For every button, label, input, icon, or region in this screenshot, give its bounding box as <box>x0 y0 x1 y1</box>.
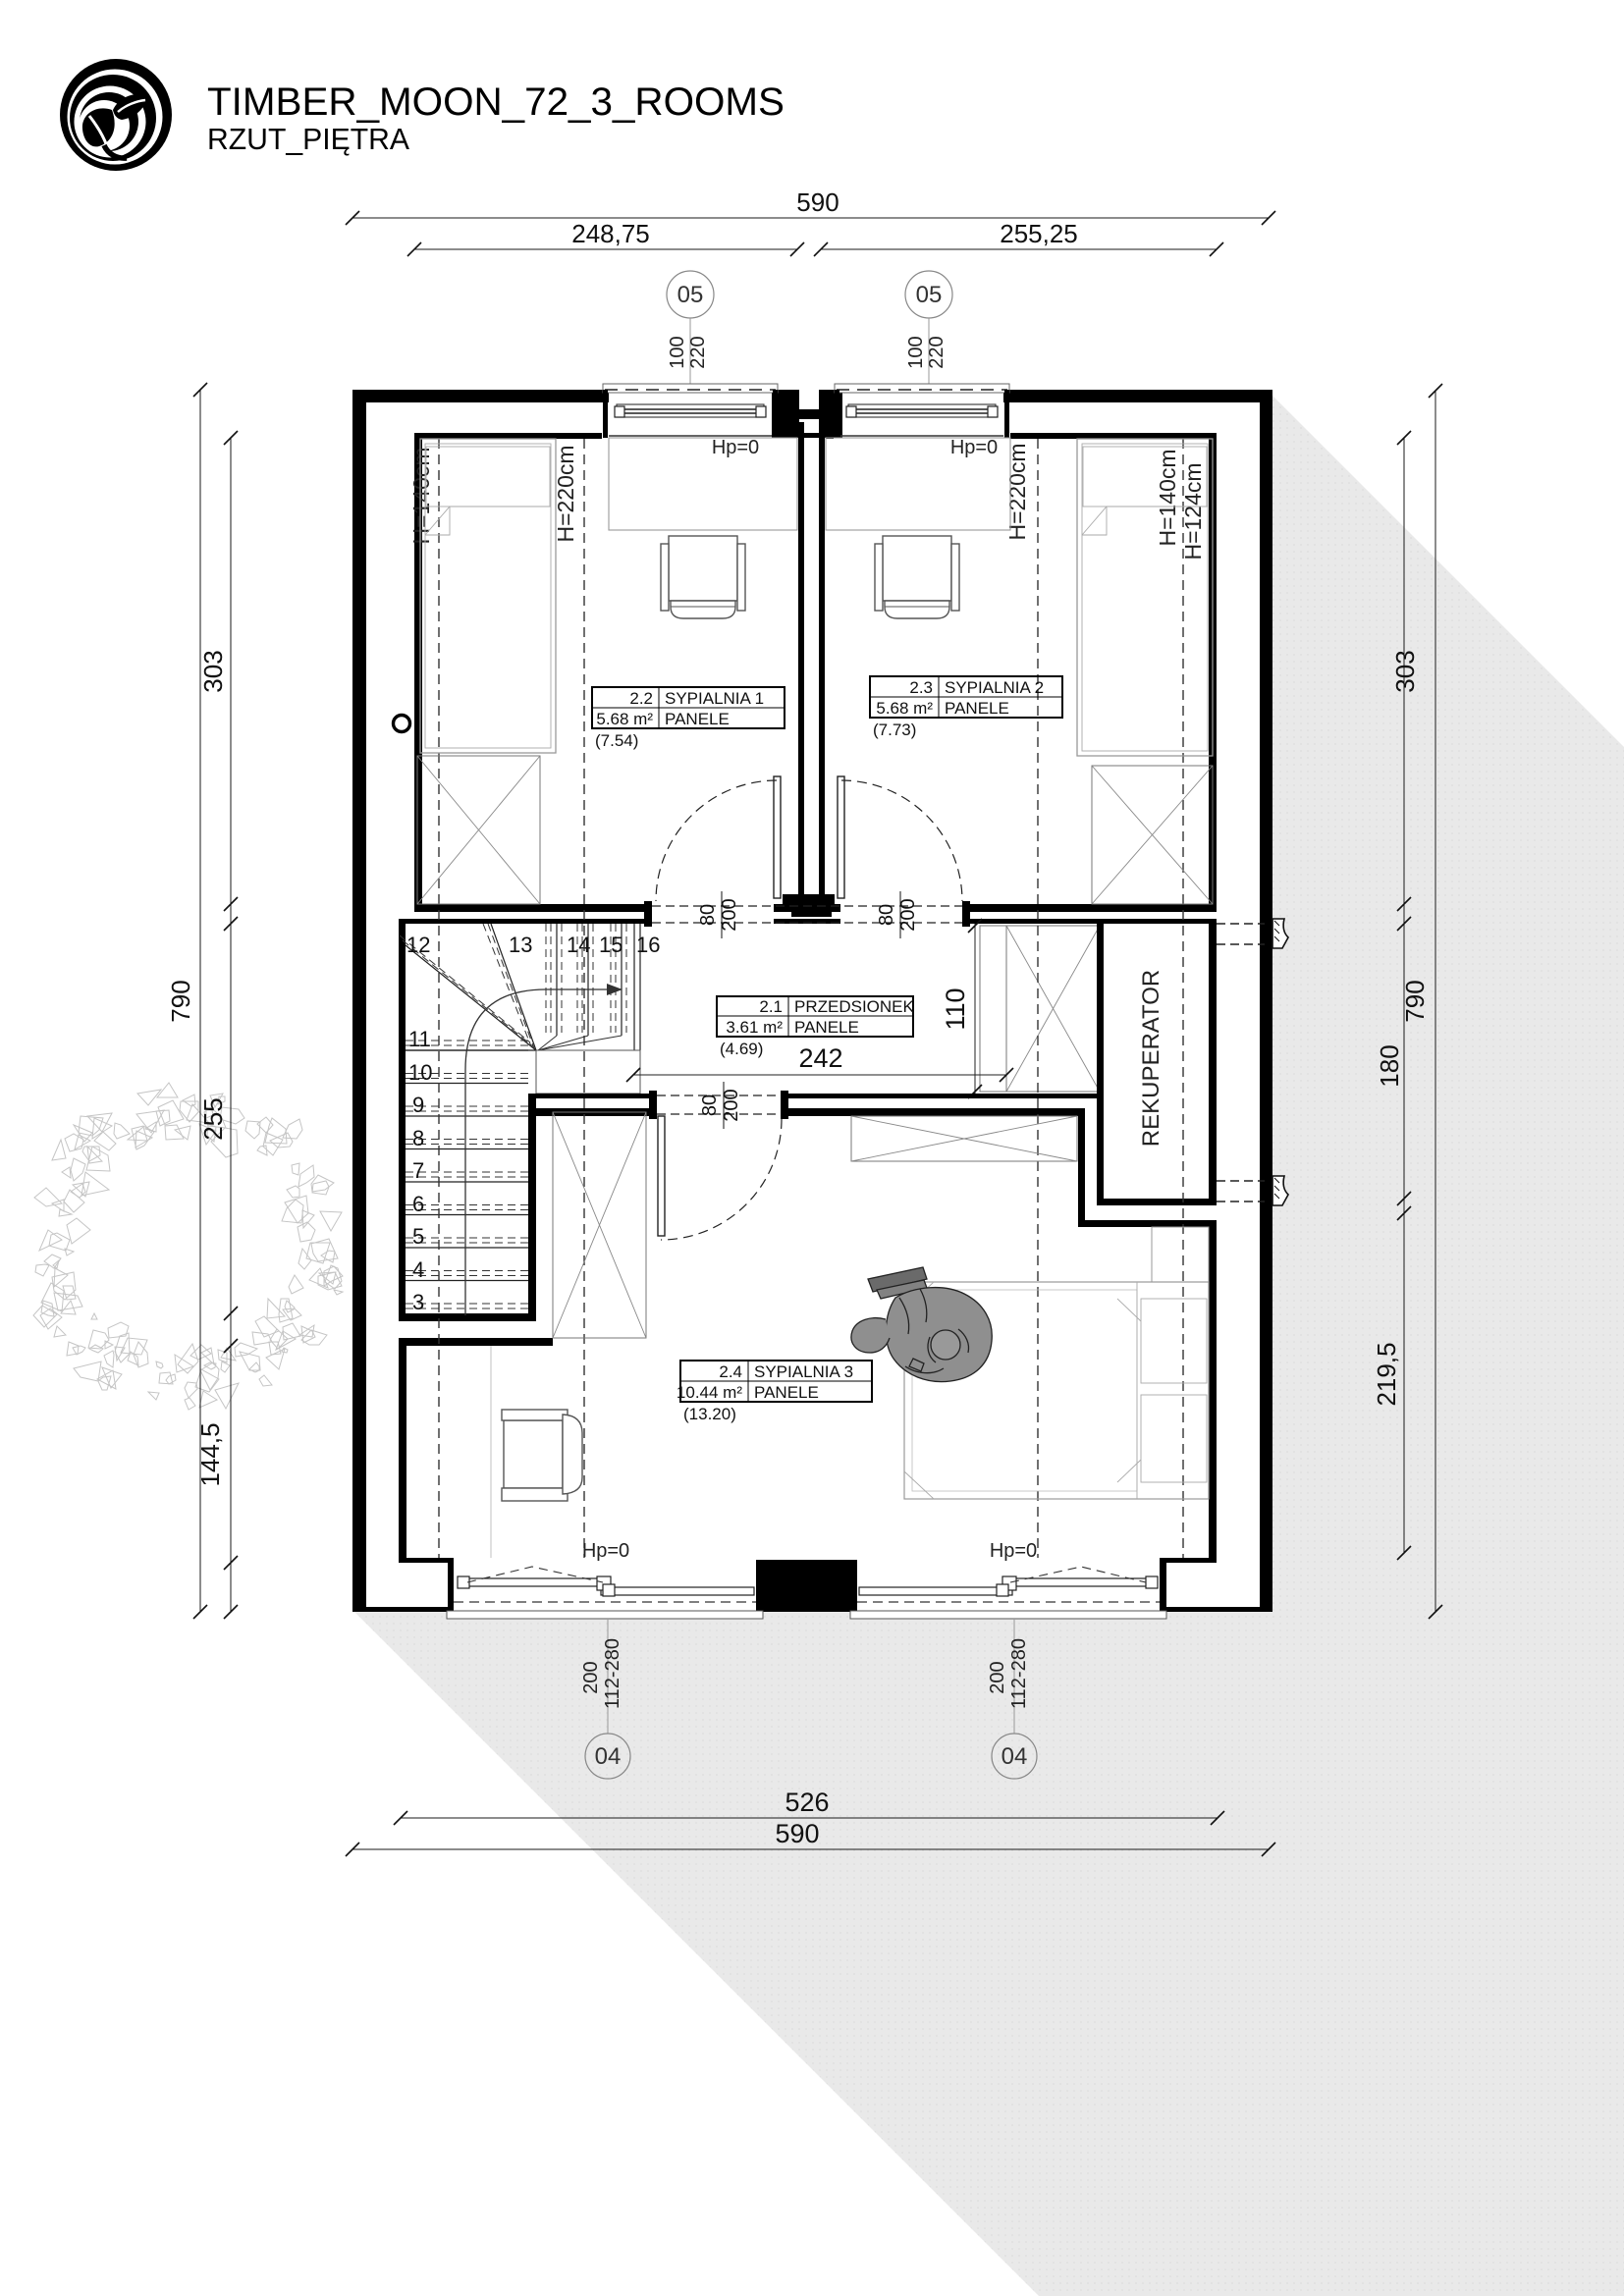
svg-text:80: 80 <box>699 1095 721 1116</box>
svg-text:13: 13 <box>509 933 532 957</box>
svg-text:220: 220 <box>687 336 709 368</box>
svg-text:200: 200 <box>580 1661 602 1693</box>
svg-text:219,5: 219,5 <box>1372 1342 1401 1406</box>
svg-text:526: 526 <box>785 1788 829 1817</box>
svg-text:SYPIALNIA 2: SYPIALNIA 2 <box>945 678 1044 697</box>
svg-text:H=220cm: H=220cm <box>553 445 578 542</box>
svg-text:PANELE: PANELE <box>754 1383 819 1402</box>
svg-text:3.61 m²: 3.61 m² <box>726 1018 783 1037</box>
svg-text:303: 303 <box>198 650 228 692</box>
svg-text:3: 3 <box>412 1290 424 1314</box>
svg-text:(13.20): (13.20) <box>683 1405 736 1423</box>
svg-text:303: 303 <box>1390 650 1420 692</box>
svg-text:144,5: 144,5 <box>195 1422 225 1486</box>
svg-text:(7.73): (7.73) <box>873 721 916 739</box>
svg-text:110: 110 <box>941 988 970 1030</box>
svg-text:PANELE: PANELE <box>665 710 730 728</box>
svg-text:05: 05 <box>677 282 704 308</box>
svg-text:255,25: 255,25 <box>1000 219 1078 248</box>
svg-text:04: 04 <box>1001 1743 1028 1770</box>
svg-text:11: 11 <box>408 1027 431 1051</box>
svg-text:200: 200 <box>719 898 740 931</box>
svg-text:100: 100 <box>905 336 927 368</box>
svg-text:2.4: 2.4 <box>719 1362 742 1381</box>
svg-text:242: 242 <box>798 1043 842 1073</box>
svg-text:5.68 m²: 5.68 m² <box>596 710 653 728</box>
svg-text:790: 790 <box>166 980 195 1022</box>
svg-text:Hp=0: Hp=0 <box>712 437 759 458</box>
svg-text:PANELE: PANELE <box>945 699 1009 718</box>
svg-text:H=220cm: H=220cm <box>1004 443 1030 540</box>
svg-text:8: 8 <box>412 1126 424 1150</box>
svg-text:590: 590 <box>796 187 839 217</box>
svg-text:PANELE: PANELE <box>794 1018 859 1037</box>
svg-text:PRZEDSIONEK: PRZEDSIONEK <box>794 997 915 1016</box>
svg-text:Hp=0: Hp=0 <box>990 1540 1037 1562</box>
svg-text:Hp=0: Hp=0 <box>582 1540 629 1562</box>
svg-text:H=124cm: H=124cm <box>1180 462 1206 560</box>
svg-text:80: 80 <box>697 904 719 926</box>
svg-text:05: 05 <box>916 282 943 308</box>
svg-text:80: 80 <box>876 904 897 926</box>
svg-text:10.44 m²: 10.44 m² <box>677 1383 742 1402</box>
svg-text:180: 180 <box>1375 1044 1404 1087</box>
svg-text:RZUT_PIĘTRA: RZUT_PIĘTRA <box>207 122 409 156</box>
svg-text:5: 5 <box>412 1224 424 1249</box>
svg-text:TIMBER_MOON_72_3_ROOMS: TIMBER_MOON_72_3_ROOMS <box>207 80 785 124</box>
svg-text:(7.54): (7.54) <box>595 731 638 750</box>
svg-text:REKUPERATOR: REKUPERATOR <box>1138 970 1164 1147</box>
svg-text:2.3: 2.3 <box>909 678 933 697</box>
svg-text:(4.69): (4.69) <box>720 1040 763 1058</box>
svg-text:220: 220 <box>926 336 947 368</box>
svg-text:248,75: 248,75 <box>571 219 650 248</box>
svg-text:9: 9 <box>412 1093 424 1117</box>
svg-text:590: 590 <box>775 1819 819 1848</box>
svg-text:H=140cm: H=140cm <box>1155 449 1180 546</box>
svg-text:5.68 m²: 5.68 m² <box>876 699 933 718</box>
svg-text:4: 4 <box>412 1257 424 1282</box>
svg-text:112-280: 112-280 <box>602 1638 623 1709</box>
svg-text:200: 200 <box>897 898 919 931</box>
svg-text:12: 12 <box>406 933 430 957</box>
svg-text:200: 200 <box>721 1089 742 1121</box>
svg-text:16: 16 <box>636 933 660 957</box>
svg-text:7: 7 <box>412 1158 424 1183</box>
svg-text:SYPIALNIA 1: SYPIALNIA 1 <box>665 689 764 708</box>
svg-text:255: 255 <box>198 1097 228 1140</box>
svg-text:10: 10 <box>408 1060 432 1085</box>
svg-text:112-280: 112-280 <box>1008 1638 1030 1709</box>
svg-text:100: 100 <box>667 336 688 368</box>
svg-text:Hp=0: Hp=0 <box>950 437 998 458</box>
svg-text:6: 6 <box>412 1192 424 1216</box>
svg-text:15: 15 <box>599 933 623 957</box>
svg-text:SYPIALNIA 3: SYPIALNIA 3 <box>754 1362 853 1381</box>
svg-text:2.1: 2.1 <box>759 997 783 1016</box>
svg-text:200: 200 <box>987 1661 1008 1693</box>
svg-text:14: 14 <box>567 933 590 957</box>
svg-text:04: 04 <box>595 1743 622 1770</box>
svg-text:2.2: 2.2 <box>629 689 653 708</box>
